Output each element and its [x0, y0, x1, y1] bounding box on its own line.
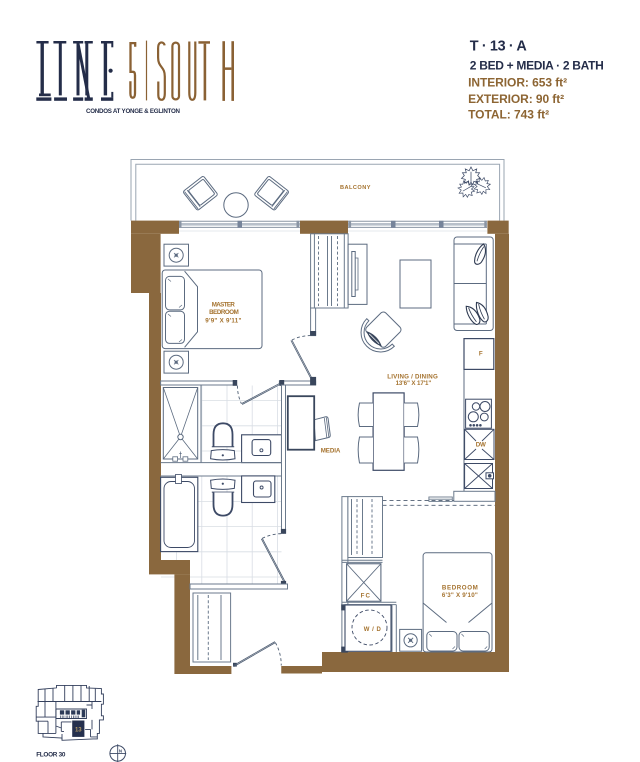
svg-text:T · 13 · A: T · 13 · A	[470, 39, 528, 55]
svg-text:6'3" X 9'10": 6'3" X 9'10"	[442, 592, 478, 599]
svg-text:MEDIA: MEDIA	[321, 447, 341, 454]
svg-text:TOTAL: 743 ft²: TOTAL: 743 ft²	[468, 108, 549, 122]
svg-text:MASTER: MASTER	[212, 301, 236, 308]
svg-text:2 BED + MEDIA · 2 BATH: 2 BED + MEDIA · 2 BATH	[470, 59, 604, 73]
svg-text:CONDOS AT YONGE & EGLINTON: CONDOS AT YONGE & EGLINTON	[86, 108, 181, 115]
svg-text:F: F	[479, 351, 483, 358]
svg-text:N: N	[119, 749, 122, 754]
svg-text:INTERIOR: 653 ft²: INTERIOR: 653 ft²	[468, 76, 567, 90]
svg-text:FC: FC	[361, 593, 371, 600]
svg-text:BEDROOM: BEDROOM	[209, 309, 239, 316]
svg-text:EXTERIOR: 90 ft²: EXTERIOR: 90 ft²	[468, 92, 564, 106]
svg-text:13'6" X 17'1": 13'6" X 17'1"	[396, 380, 432, 387]
svg-text:13: 13	[75, 727, 82, 733]
svg-text:BEDROOM: BEDROOM	[442, 585, 478, 592]
svg-text:DW: DW	[476, 442, 486, 449]
svg-text:FLOOR 30: FLOOR 30	[36, 752, 66, 759]
svg-text:W/D: W/D	[364, 627, 382, 633]
svg-text:BALCONY: BALCONY	[340, 185, 371, 191]
svg-text:9'9" X 9'11": 9'9" X 9'11"	[205, 317, 241, 324]
